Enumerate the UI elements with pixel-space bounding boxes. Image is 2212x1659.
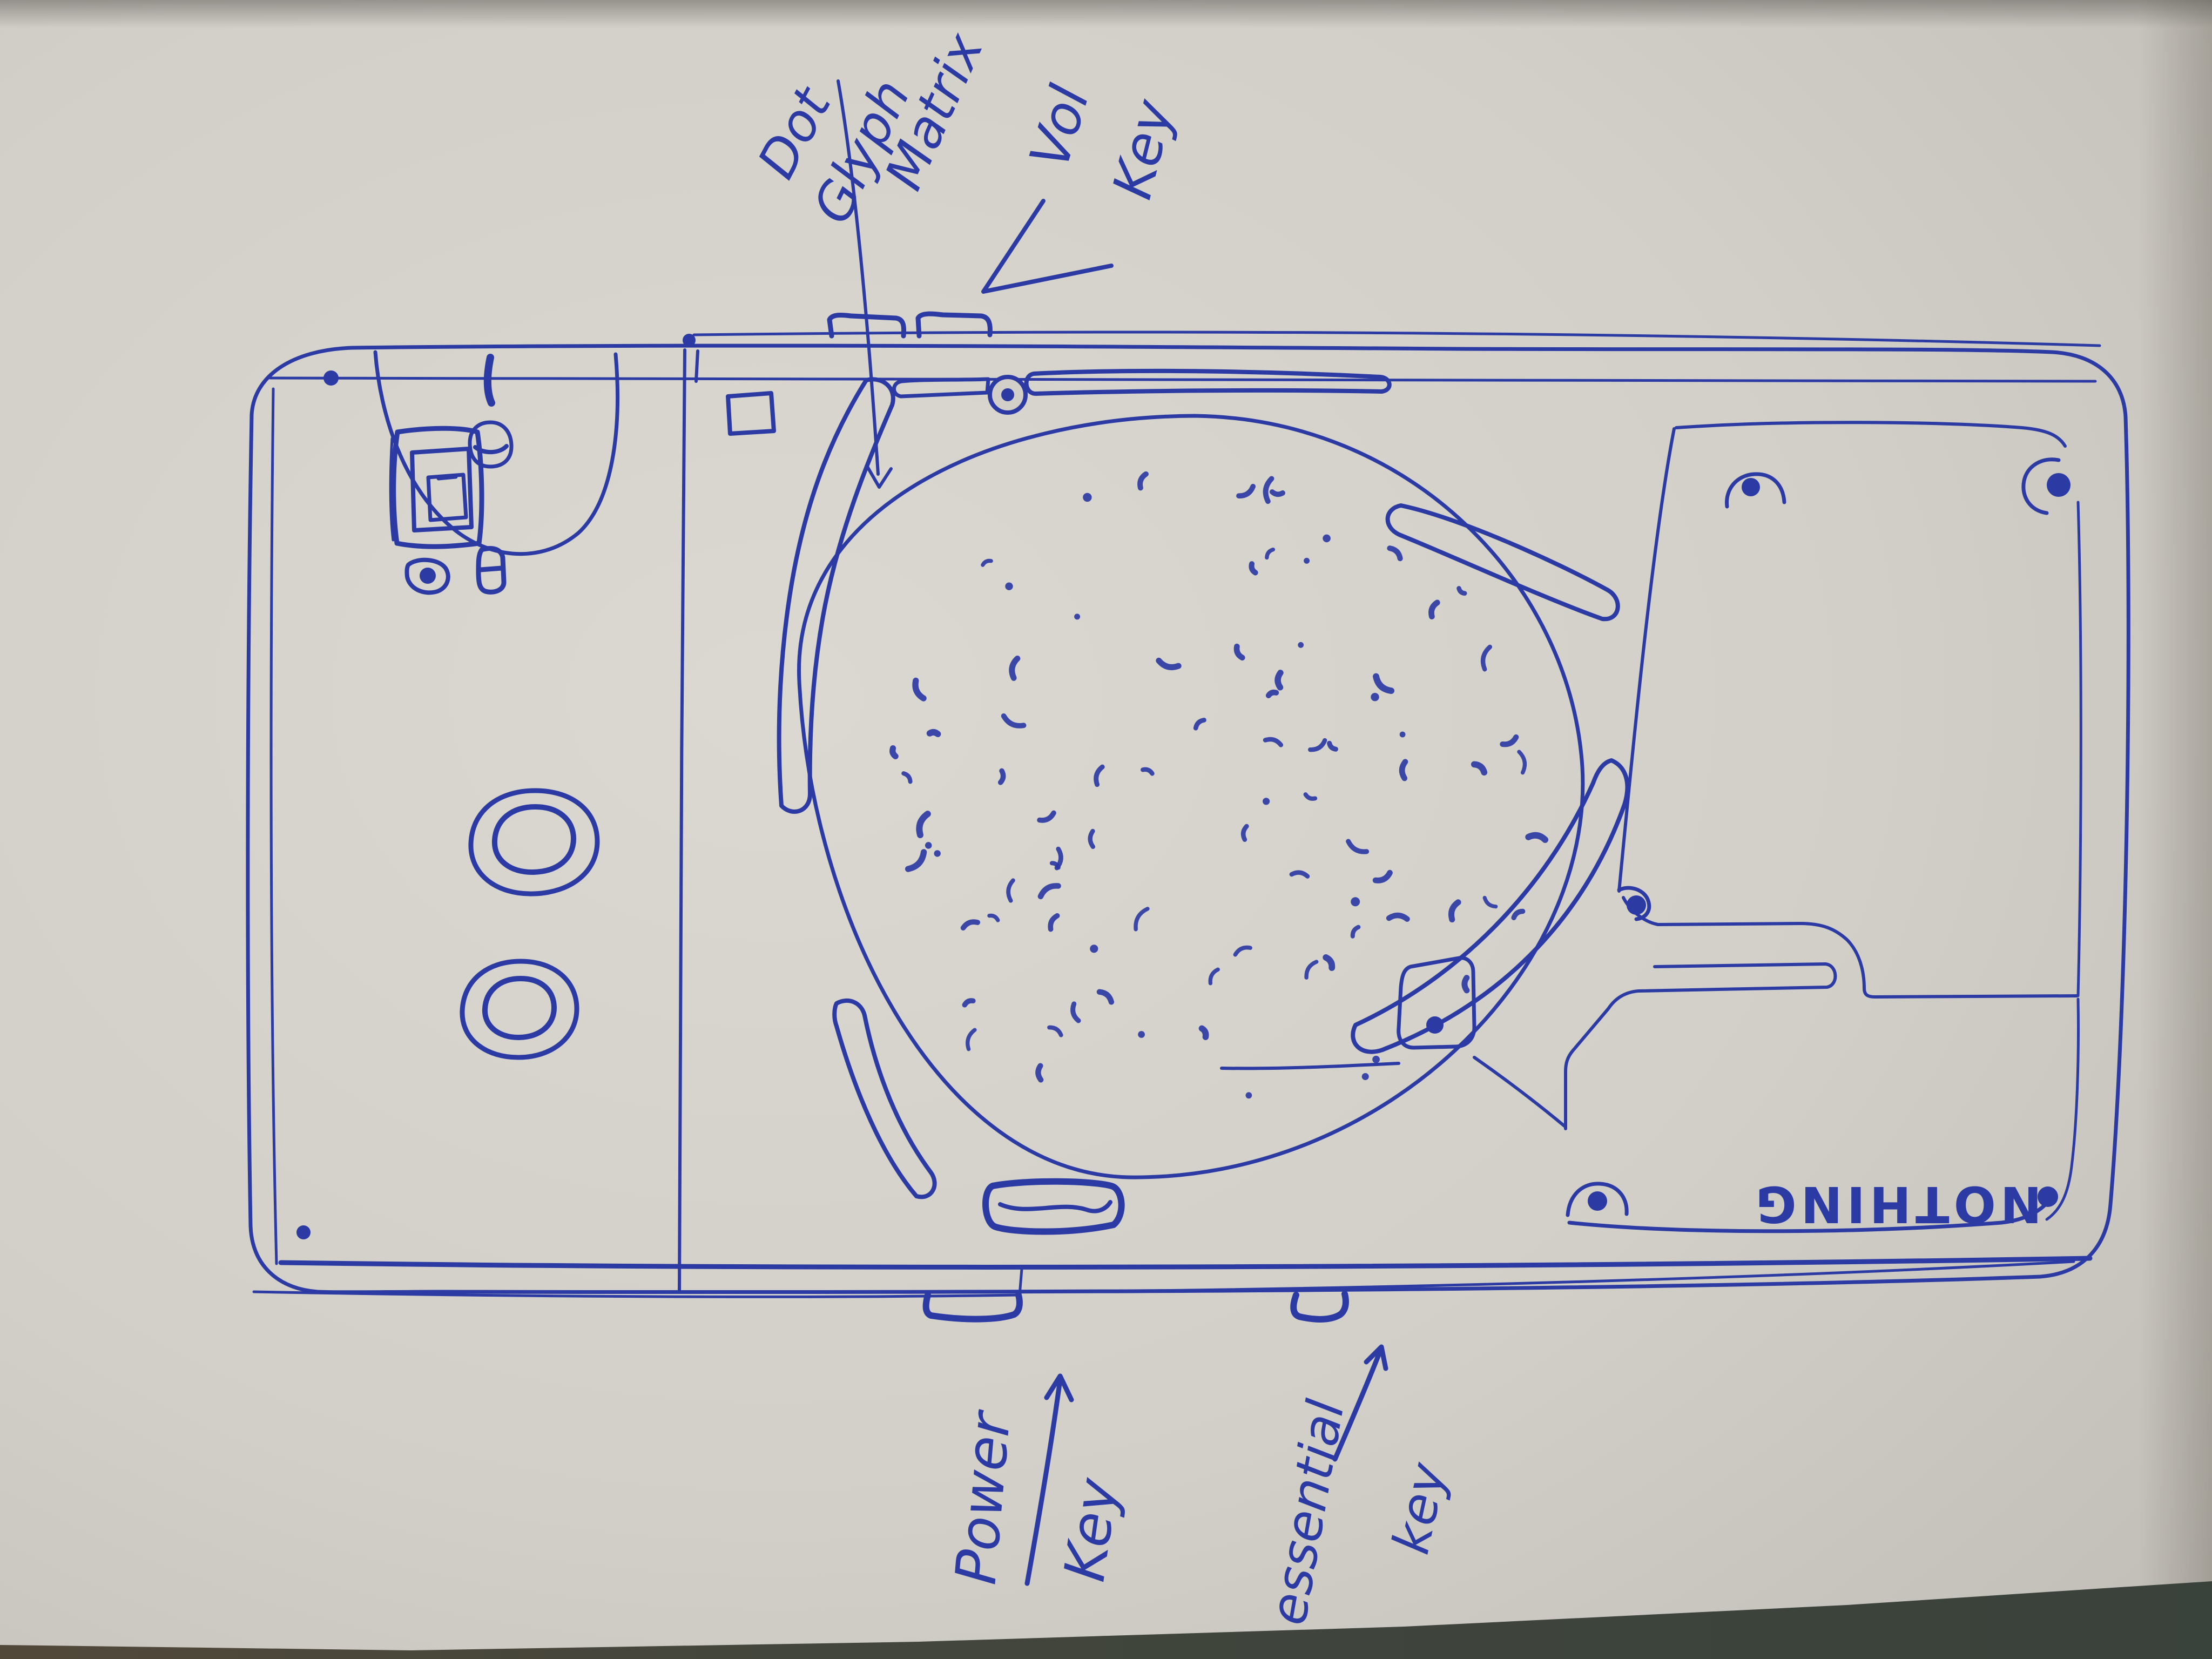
texture-dash	[930, 732, 938, 734]
sensor-dot	[420, 568, 436, 584]
screw-top-left	[323, 370, 339, 386]
texture-dash	[1269, 692, 1276, 696]
screw-bottom-left	[296, 1225, 311, 1239]
camera-bulge-tick	[488, 358, 491, 403]
texture-dash	[1402, 762, 1405, 778]
texture-dash	[1038, 1066, 1041, 1080]
texture-dot	[934, 850, 941, 857]
panel-screw-bl	[1588, 1191, 1607, 1211]
sketch-photo: Dot Glyph Matrix Vol Key Power Key essen…	[0, 0, 2212, 1659]
texture-dot	[1323, 535, 1331, 543]
paper-sheet	[0, 0, 2212, 1659]
texture-dash	[1465, 978, 1467, 990]
texture-dash	[1001, 771, 1003, 783]
texture-dash	[893, 748, 895, 757]
panel-screw-tr	[2047, 473, 2071, 497]
texture-dot	[1138, 1031, 1145, 1038]
panel-screw-mid	[1627, 895, 1646, 915]
texture-dot	[1400, 732, 1406, 738]
texture-dot	[1304, 558, 1310, 564]
texture-dot	[1083, 493, 1091, 502]
chin-screw	[1426, 1016, 1444, 1034]
texture-dash	[1272, 492, 1283, 494]
texture-dot	[1246, 1092, 1252, 1098]
photo-top-shadow	[0, 0, 2212, 28]
photo-right-shadow	[2139, 0, 2212, 1659]
panel-screw-tl	[1742, 478, 1760, 496]
texture-dot	[1351, 897, 1360, 906]
texture-dot	[1090, 945, 1098, 953]
texture-dot	[1371, 693, 1379, 701]
texture-dot	[1372, 1056, 1380, 1063]
texture-dot	[1362, 1073, 1369, 1080]
texture-dot	[1298, 642, 1304, 648]
divider-ink-blob	[683, 334, 696, 347]
texture-dash	[1278, 673, 1280, 687]
texture-dot	[1005, 583, 1013, 590]
texture-dot	[1074, 613, 1080, 619]
nothing-wordmark: NOTHING	[1751, 1175, 2042, 1233]
texture-dot	[1263, 798, 1270, 805]
texture-dot	[925, 842, 932, 849]
glyph-hinge-dot	[1001, 388, 1014, 401]
